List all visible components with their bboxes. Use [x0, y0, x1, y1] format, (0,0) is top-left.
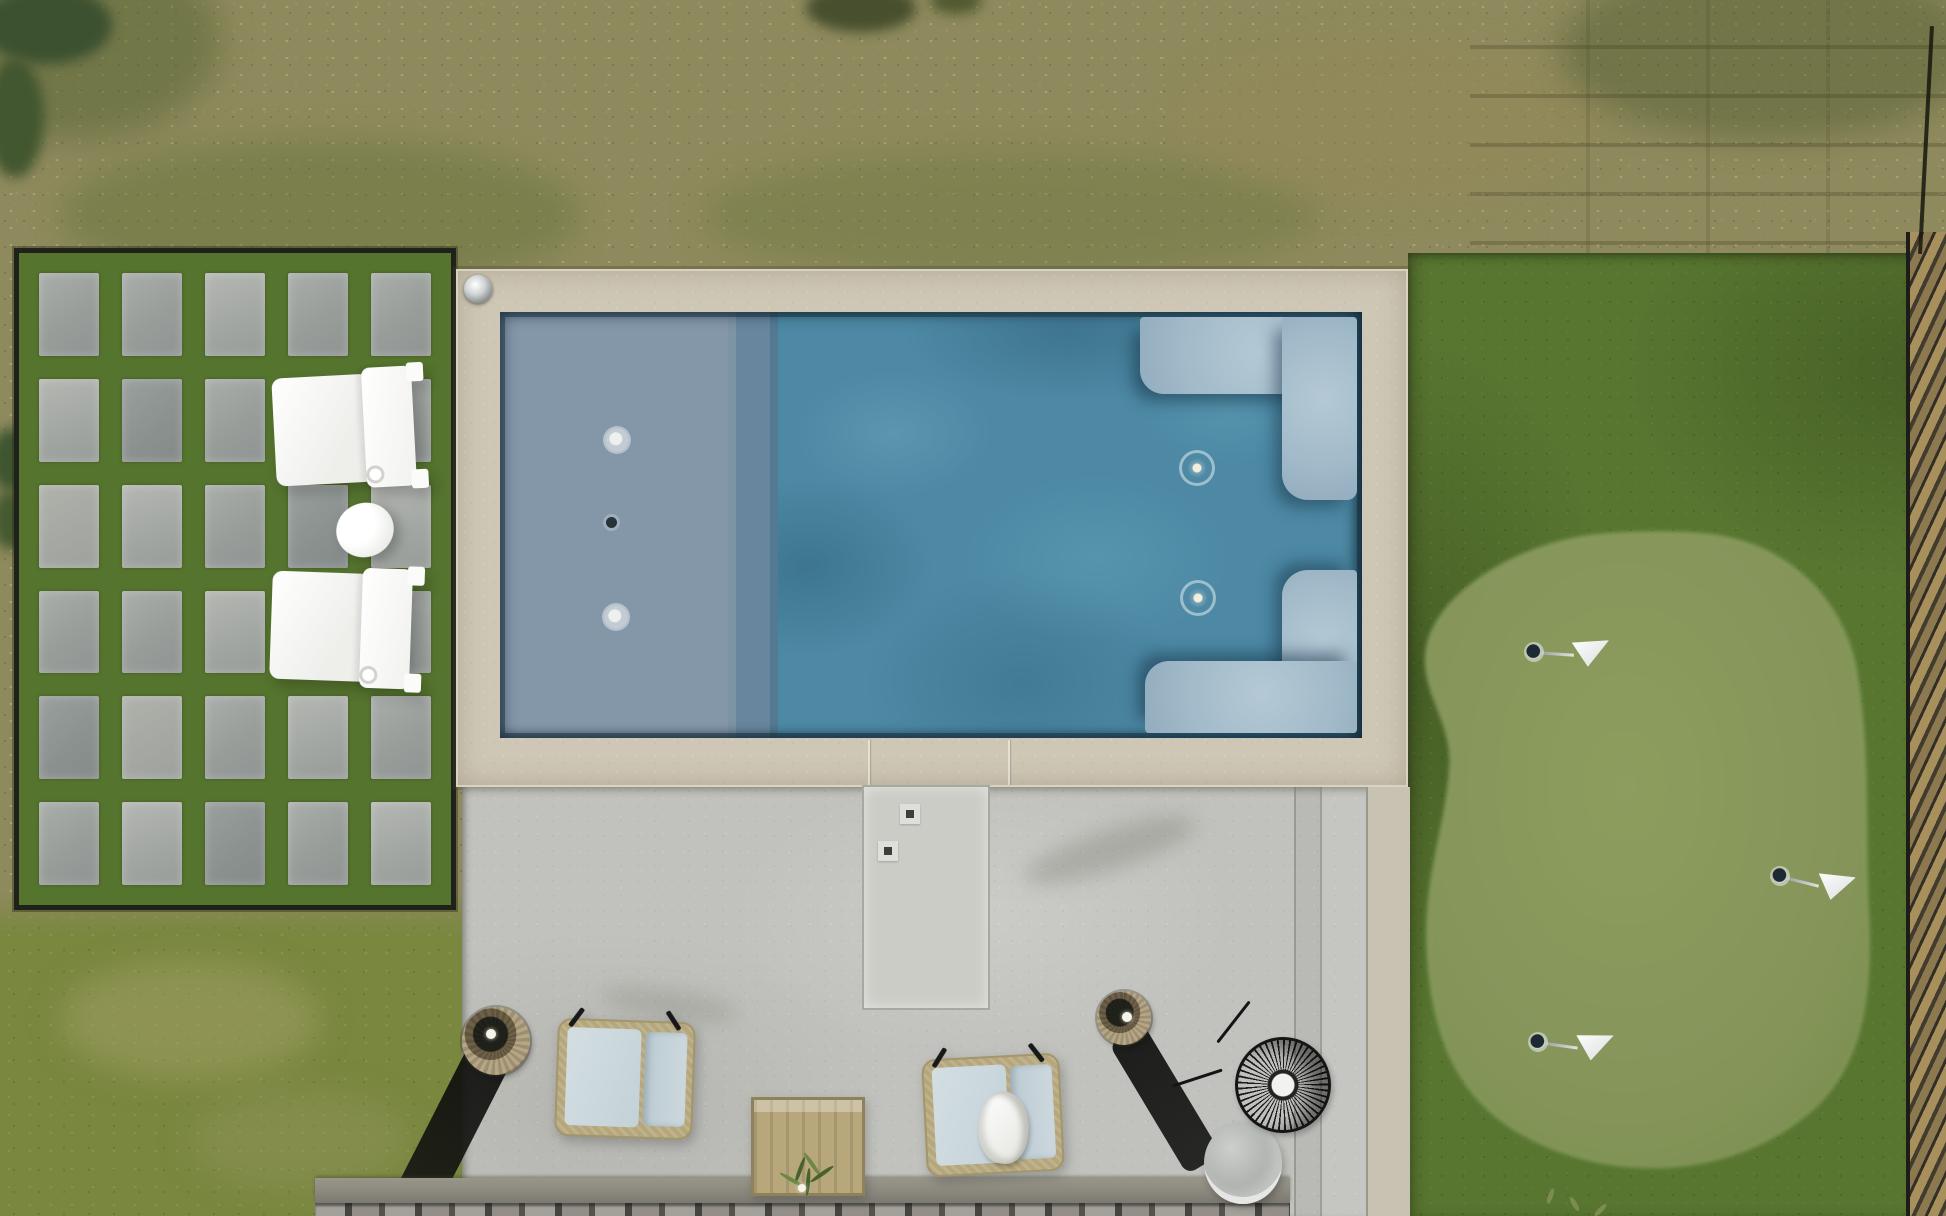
pool-jet — [1180, 580, 1216, 616]
paver — [39, 273, 99, 356]
umbrella-socket — [900, 804, 920, 824]
lounge-chair — [921, 1052, 1065, 1177]
wood-fence — [1906, 232, 1946, 1216]
ledge-bubbler-jet — [605, 428, 629, 452]
paver — [39, 696, 99, 779]
paver — [371, 696, 431, 779]
retaining-wall-stones — [315, 1203, 1290, 1216]
paver — [39, 591, 99, 674]
chair-seat — [269, 571, 371, 682]
lawn-dry-patch — [60, 960, 320, 1080]
white-cube-chair — [271, 365, 417, 492]
paver — [205, 379, 265, 462]
paver — [122, 379, 182, 462]
chair-cushion — [564, 1027, 641, 1128]
ledge-bubbler-jet — [604, 605, 628, 629]
paver — [205, 485, 265, 568]
paver — [371, 273, 431, 356]
white-cube-chair — [269, 565, 413, 690]
paver — [205, 591, 265, 674]
sod-seam-lines — [1470, 0, 1946, 258]
swimming-pool — [500, 312, 1362, 738]
paver — [122, 273, 182, 356]
chair-back-cushion — [642, 1032, 687, 1127]
paver — [122, 696, 182, 779]
candle — [486, 1029, 496, 1039]
coping-joint — [1008, 740, 1010, 785]
pool-jet — [1179, 450, 1215, 486]
wicker-lantern — [1097, 991, 1151, 1045]
patio-step-joint — [1320, 787, 1368, 1216]
candle — [1122, 1012, 1132, 1022]
paver — [39, 802, 99, 885]
paver — [288, 696, 348, 779]
pool-bench — [1145, 661, 1357, 733]
wood-planter-box — [751, 1097, 865, 1196]
ledge-drain — [606, 517, 617, 528]
paver — [205, 696, 265, 779]
umbrella-pad — [864, 787, 988, 1008]
paver — [39, 485, 99, 568]
wire-fire-bowl — [1235, 1037, 1331, 1133]
paver — [122, 802, 182, 885]
deck-light-fixture — [464, 275, 492, 303]
lawn-dry-patch — [190, 1090, 410, 1190]
wicker-lantern — [462, 1007, 530, 1075]
white-flower — [798, 1184, 806, 1192]
patio-step-joint — [1294, 787, 1322, 1216]
paver — [39, 379, 99, 462]
pool-bench — [1282, 317, 1357, 500]
lounge-chair — [554, 1018, 696, 1141]
aerial-backyard-photo — [0, 0, 1946, 1216]
deck-step-band — [1366, 787, 1410, 1216]
umbrella-socket — [878, 841, 898, 861]
paver — [122, 485, 182, 568]
coping-joint — [868, 740, 870, 785]
putting-green — [1400, 518, 1886, 1178]
paver — [205, 802, 265, 885]
chair-seat — [271, 374, 375, 487]
paver — [205, 273, 265, 356]
paver — [288, 802, 348, 885]
paver — [122, 591, 182, 674]
paver — [288, 273, 348, 356]
paver — [371, 802, 431, 885]
concrete-drum-table — [1204, 1122, 1282, 1204]
